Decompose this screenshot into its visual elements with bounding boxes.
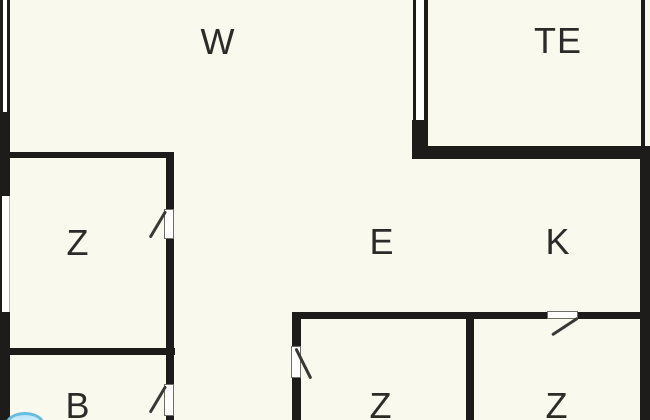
bathroom-fixture	[5, 412, 45, 420]
wall-bottom-middle-z-left-lower	[292, 378, 301, 420]
wall-z-room-right-lower	[166, 239, 174, 348]
room-label-w: W	[201, 21, 236, 63]
room-label-z-left: Z	[67, 222, 90, 264]
door-swing-bottom-right-z	[551, 317, 578, 336]
window-left-middle	[0, 196, 10, 312]
room-label-te: TE	[534, 20, 582, 62]
room-label-z-bottom-right: Z	[546, 385, 569, 420]
wall-z-room-top	[0, 152, 174, 158]
floor-plan: W TE Z E K B Z Z	[0, 0, 650, 420]
room-label-k: K	[545, 221, 570, 263]
wall-b-room-right-upper	[166, 355, 174, 385]
room-label-b: B	[65, 385, 90, 420]
exterior-wall-right	[640, 146, 650, 420]
wall-bottom-middle-z-left-upper	[292, 312, 301, 347]
wall-te-bottom	[412, 146, 650, 159]
wall-between-z-and-b	[0, 348, 175, 355]
wall-between-bottom-z-rooms	[466, 313, 474, 420]
window-te-left	[413, 0, 428, 122]
room-label-z-bottom-middle: Z	[370, 385, 393, 420]
room-label-e: E	[369, 221, 394, 263]
wall-bottom-rooms-top-left-segment	[292, 312, 547, 319]
wall-te-right	[641, 0, 645, 146]
wall-bottom-rooms-top-right-segment	[578, 312, 640, 319]
exterior-wall-left-lower	[0, 312, 10, 420]
door-leaf-bottom-right-z	[547, 311, 578, 319]
window-left-top	[0, 0, 10, 112]
wall-z-room-right-upper	[166, 156, 174, 210]
